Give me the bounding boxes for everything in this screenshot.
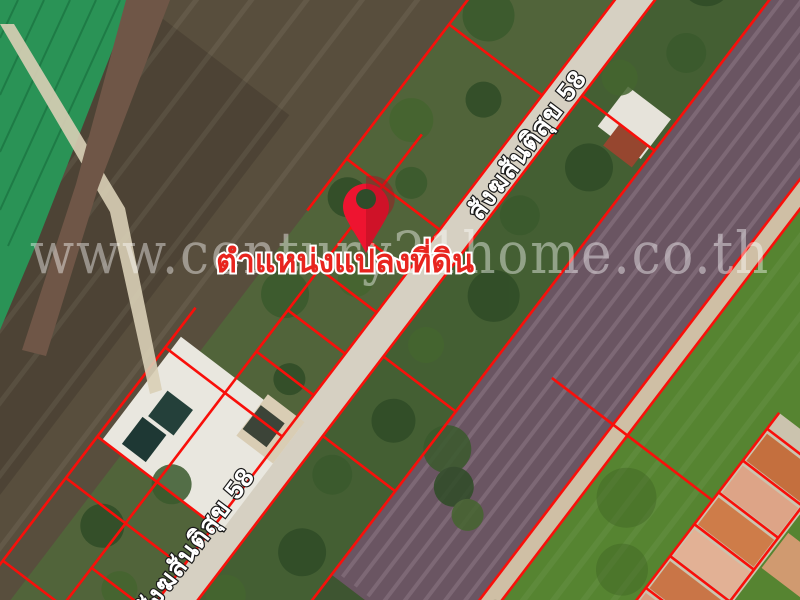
- parcel-position-label: ตำแหน่งแปลงที่ดิน: [216, 238, 474, 279]
- satellite-map-view: www.century21home.co.th สังฆสันติสุข 58 …: [0, 0, 800, 600]
- map-canvas: www.century21home.co.th สังฆสันติสุข 58 …: [0, 0, 800, 600]
